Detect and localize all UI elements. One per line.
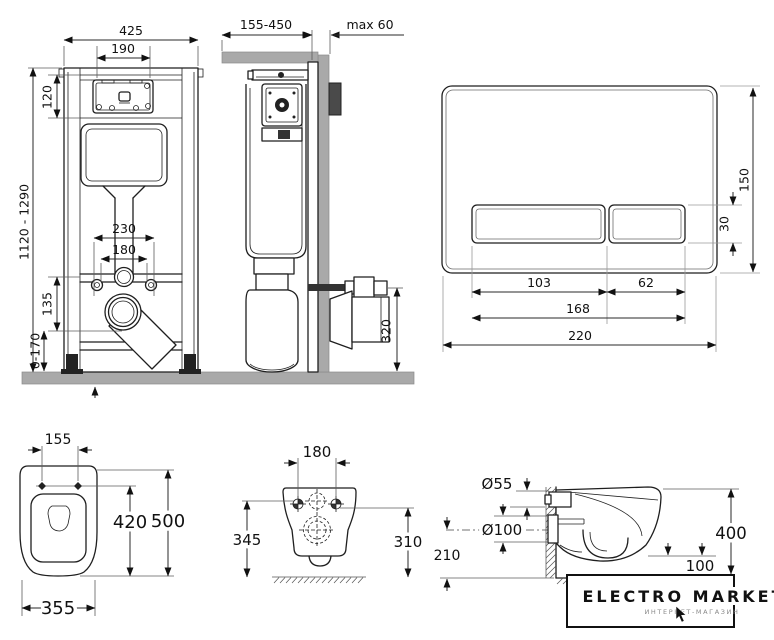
view-pan-back: 180 345 310 <box>233 443 423 583</box>
frame-rail-side <box>308 62 318 372</box>
outlet-spigot <box>548 515 558 543</box>
inlet-spigot <box>549 492 571 507</box>
dim-buttons-total-width: 168 <box>566 301 590 316</box>
dim-mech-width: 190 <box>111 41 135 56</box>
dim-outlet-diameter: Ø100 <box>482 521 522 539</box>
brand-logo: ELECTRO MARKET ИНТЕРНЕТ-МАГАЗИН <box>567 575 774 627</box>
dim-installed-height: 400 <box>715 524 747 543</box>
dim-outlet-offset: 135 <box>39 292 54 316</box>
flush-bend-side <box>246 290 298 372</box>
dim-depth-range: 155-450 <box>240 17 292 32</box>
drawing-canvas: 425 190 120 1120 - 1290 230 180 135 <box>0 0 774 640</box>
dim-outlet-center-height: 210 <box>434 548 461 564</box>
pan-back-tab <box>309 556 331 566</box>
wall-bracket-top <box>248 70 308 80</box>
dim-frame-height-range: 1120 - 1290 <box>16 184 31 260</box>
flush-button-small[interactable] <box>609 205 685 243</box>
logo-subtitle: ИНТЕРНЕТ-МАГАЗИН <box>644 608 739 616</box>
view-frame-front: 425 190 120 1120 - 1290 230 180 135 <box>16 23 203 398</box>
dim-inlet-diameter: Ø55 <box>482 475 513 493</box>
hanger-tab-left <box>59 69 64 77</box>
dim-plate-height: 150 <box>736 168 751 192</box>
pan-side-profile <box>545 487 661 561</box>
dim-left-height: 345 <box>233 531 262 549</box>
dim-plate-width: 220 <box>568 328 592 343</box>
dim-hole-spacing: 155 <box>45 432 72 448</box>
dim-bottom-clearance: 100 <box>686 557 715 575</box>
cistern-side <box>246 84 306 372</box>
dim-panel-height: 120 <box>39 85 54 109</box>
view-pan-side: Ø55 Ø100 210 400 100 <box>434 475 747 591</box>
dim-fixing-spacing-outer: 230 <box>112 221 136 236</box>
flush-mechanism-side <box>262 84 302 141</box>
dim-small-button-width: 62 <box>638 275 654 290</box>
dim-bowl-width: 355 <box>41 598 75 619</box>
dim-right-height: 310 <box>394 533 423 551</box>
pan-back-floor <box>272 577 366 583</box>
dim-foot-adjust: 0-170 <box>27 333 42 369</box>
wall-anchor-block <box>329 83 341 115</box>
logo-title: ELECTRO MARKET <box>582 587 774 606</box>
dim-large-button-width: 103 <box>527 275 551 290</box>
view-frame-side: 155-450 max 60 320 <box>222 17 404 372</box>
dim-button-height: 30 <box>716 216 731 232</box>
dim-outlet-height: 320 <box>378 319 393 343</box>
dim-fixing-spacing-inner: 180 <box>112 242 136 257</box>
flush-mechanism <box>93 80 153 113</box>
view-pan-top: 155 420 500 355 <box>20 432 185 619</box>
dim-frame-width: 425 <box>119 23 143 38</box>
dim-max-panel: max 60 <box>346 17 393 32</box>
dimension-drawing: 425 190 120 1120 - 1290 230 180 135 <box>0 0 774 640</box>
flush-button-large[interactable] <box>472 205 605 243</box>
view-flush-plate: 103 62 168 220 150 30 <box>442 86 760 352</box>
dim-total-length: 500 <box>151 511 185 532</box>
hanger-tab-right <box>198 69 203 77</box>
dim-fixing-spacing: 180 <box>303 443 332 461</box>
pan-back-outline <box>283 488 356 556</box>
flush-plate <box>442 86 717 273</box>
dim-hole-to-front: 420 <box>113 512 147 533</box>
